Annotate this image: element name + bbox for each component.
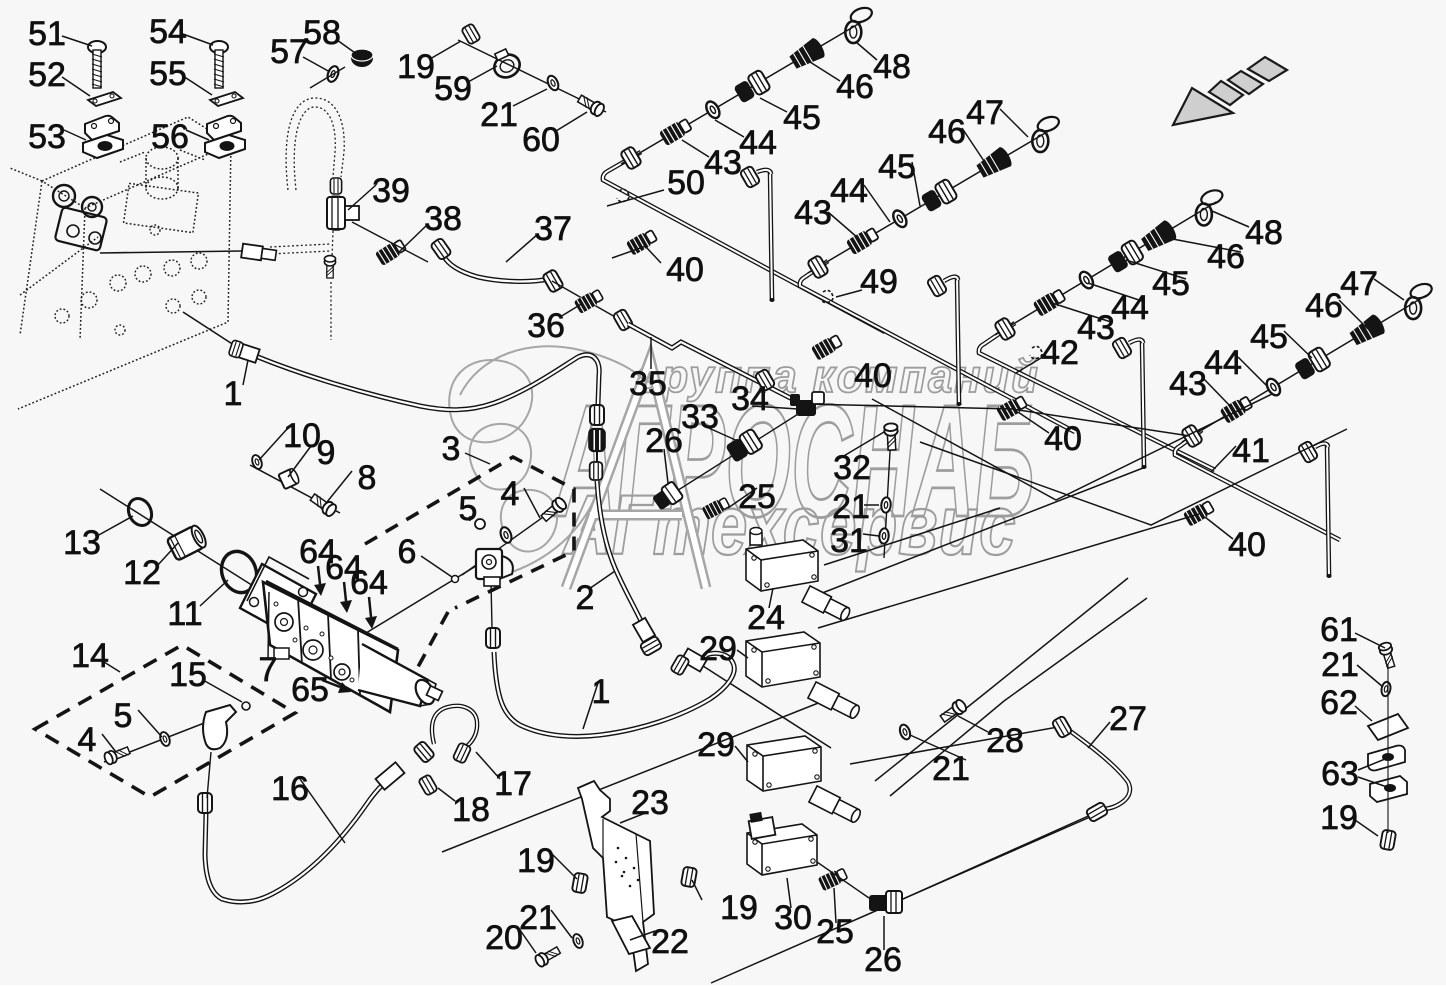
svg-text:12: 12 — [123, 554, 161, 592]
svg-text:21: 21 — [480, 96, 518, 134]
svg-text:41: 41 — [1232, 432, 1270, 470]
svg-text:29: 29 — [697, 726, 735, 764]
svg-text:29: 29 — [699, 630, 737, 668]
svg-text:4: 4 — [78, 721, 97, 759]
svg-text:21: 21 — [519, 899, 557, 937]
svg-text:19: 19 — [517, 842, 555, 880]
svg-text:44: 44 — [830, 172, 868, 210]
svg-text:6: 6 — [398, 533, 417, 571]
svg-text:4: 4 — [501, 475, 520, 513]
svg-text:27: 27 — [1109, 700, 1147, 738]
svg-text:45: 45 — [1152, 265, 1190, 303]
svg-text:30: 30 — [774, 899, 812, 937]
svg-text:3: 3 — [442, 430, 461, 468]
svg-text:18: 18 — [452, 791, 490, 829]
svg-text:14: 14 — [71, 637, 109, 675]
svg-text:2: 2 — [576, 579, 595, 617]
svg-text:43: 43 — [794, 194, 832, 232]
svg-text:58: 58 — [303, 14, 341, 52]
svg-text:62: 62 — [1320, 684, 1358, 722]
svg-text:17: 17 — [494, 765, 532, 803]
svg-text:34: 34 — [731, 380, 769, 418]
svg-text:45: 45 — [783, 99, 821, 137]
svg-text:64: 64 — [350, 564, 388, 602]
svg-text:11: 11 — [167, 595, 202, 633]
svg-text:47: 47 — [1340, 265, 1378, 303]
svg-text:40: 40 — [1044, 420, 1082, 458]
svg-text:48: 48 — [1245, 214, 1283, 252]
svg-text:5: 5 — [114, 697, 133, 735]
svg-text:61: 61 — [1320, 611, 1358, 649]
svg-text:35: 35 — [629, 365, 667, 403]
svg-text:9: 9 — [317, 434, 336, 472]
svg-text:45: 45 — [878, 148, 916, 186]
svg-text:40: 40 — [666, 251, 704, 289]
svg-text:32: 32 — [833, 449, 871, 487]
svg-text:36: 36 — [527, 307, 565, 345]
svg-text:16: 16 — [271, 770, 309, 808]
svg-text:46: 46 — [836, 68, 874, 106]
svg-text:44: 44 — [1204, 344, 1242, 382]
svg-text:39: 39 — [372, 172, 410, 210]
svg-text:43: 43 — [704, 144, 742, 182]
svg-text:25: 25 — [738, 478, 776, 516]
svg-text:38: 38 — [424, 200, 462, 238]
svg-text:44: 44 — [1111, 289, 1149, 327]
svg-text:47: 47 — [966, 94, 1004, 132]
svg-text:20: 20 — [485, 919, 523, 957]
svg-text:52: 52 — [28, 56, 66, 94]
svg-text:19: 19 — [397, 48, 435, 86]
svg-text:37: 37 — [534, 210, 572, 248]
svg-text:21: 21 — [1321, 646, 1359, 684]
svg-text:24: 24 — [747, 599, 785, 637]
svg-text:55: 55 — [149, 55, 187, 93]
svg-text:46: 46 — [928, 113, 966, 151]
svg-text:59: 59 — [434, 70, 472, 108]
svg-text:53: 53 — [28, 118, 66, 156]
svg-text:44: 44 — [739, 124, 777, 162]
svg-text:15: 15 — [169, 656, 207, 694]
svg-text:25: 25 — [816, 913, 854, 951]
svg-text:54: 54 — [149, 13, 187, 51]
svg-text:7: 7 — [259, 651, 278, 689]
svg-text:26: 26 — [864, 941, 902, 979]
svg-text:8: 8 — [358, 459, 377, 497]
svg-text:50: 50 — [667, 164, 705, 202]
svg-text:46: 46 — [1305, 287, 1343, 325]
svg-text:10: 10 — [283, 417, 321, 455]
svg-text:65: 65 — [291, 671, 329, 709]
svg-text:28: 28 — [986, 722, 1024, 760]
svg-text:1: 1 — [592, 673, 611, 711]
svg-text:48: 48 — [873, 48, 911, 86]
svg-text:46: 46 — [1207, 238, 1245, 276]
svg-text:51: 51 — [28, 15, 66, 53]
svg-text:33: 33 — [681, 398, 719, 436]
svg-text:42: 42 — [1041, 334, 1079, 372]
svg-text:5: 5 — [459, 490, 478, 528]
svg-text:22: 22 — [651, 923, 689, 961]
svg-text:45: 45 — [1250, 318, 1288, 356]
svg-text:19: 19 — [1320, 799, 1358, 837]
svg-text:40: 40 — [854, 357, 892, 395]
svg-text:63: 63 — [1321, 755, 1359, 793]
svg-text:21: 21 — [832, 488, 870, 526]
svg-text:23: 23 — [631, 784, 669, 822]
svg-text:21: 21 — [932, 750, 970, 788]
svg-text:60: 60 — [522, 121, 560, 159]
svg-text:1: 1 — [224, 375, 243, 413]
svg-text:43: 43 — [1077, 309, 1115, 347]
svg-text:56: 56 — [151, 118, 189, 156]
svg-text:40: 40 — [1228, 526, 1266, 564]
svg-text:43: 43 — [1169, 365, 1207, 403]
svg-text:31: 31 — [830, 522, 868, 560]
svg-text:49: 49 — [860, 263, 898, 301]
svg-text:13: 13 — [63, 524, 101, 562]
svg-text:19: 19 — [720, 889, 758, 927]
svg-text:26: 26 — [645, 422, 683, 460]
